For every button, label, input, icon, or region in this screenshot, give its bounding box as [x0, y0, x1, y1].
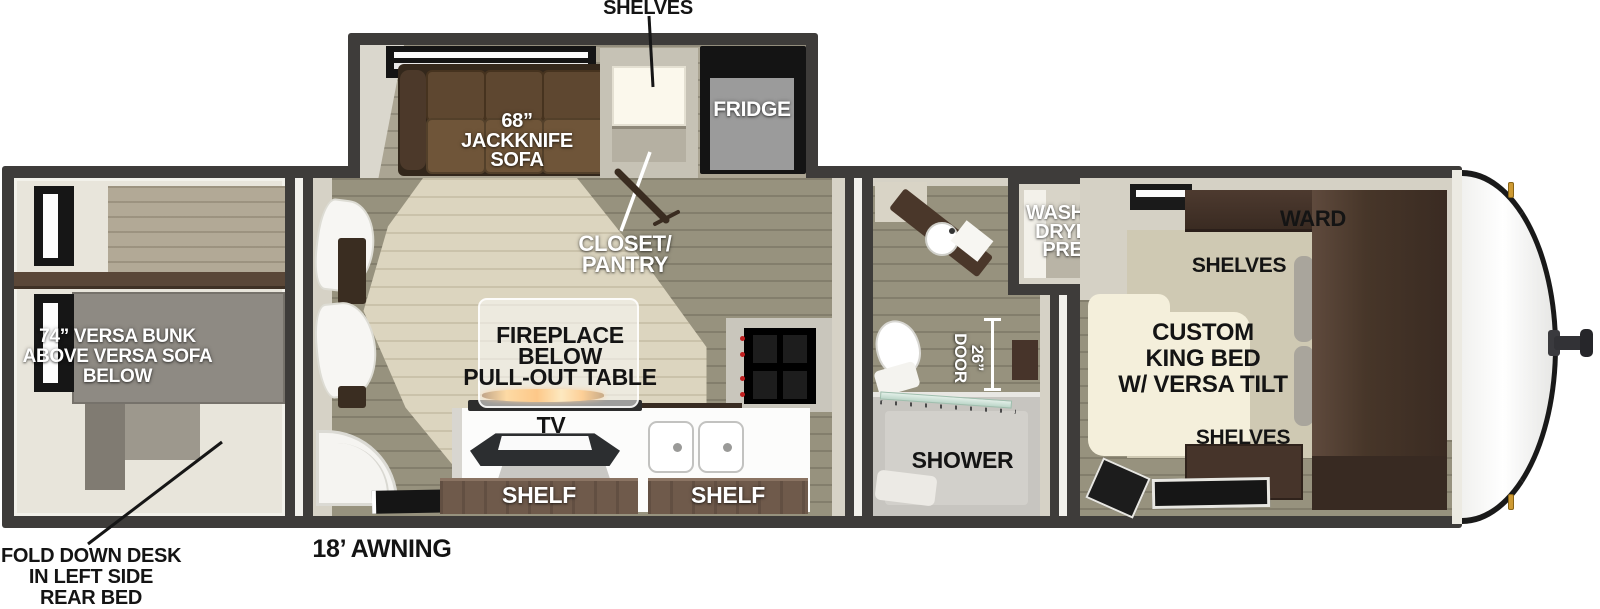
stove-knob — [740, 336, 745, 341]
rear-bedroom-wood-floor — [108, 186, 285, 276]
window-pane — [394, 52, 588, 58]
bath-left-wall — [845, 166, 854, 528]
window-pane — [43, 194, 58, 258]
burner-grate — [752, 334, 778, 364]
bath-left-wall-inner — [862, 166, 873, 528]
bedroom-rug — [1152, 477, 1271, 509]
medicine-cabinet — [1012, 340, 1038, 380]
bath-door-label: 26” DOOR — [934, 323, 986, 393]
shower-label: SHOWER — [890, 448, 1035, 472]
sink-drain-icon — [723, 443, 732, 452]
window-pane — [1136, 190, 1186, 197]
tv-screen — [498, 436, 592, 450]
faucet-icon — [949, 228, 955, 234]
bunk-label: 74” VERSA BUNK ABOVE VERSA SOFA BELOW — [20, 327, 215, 387]
shower-bench — [874, 469, 937, 506]
bath-wall-gap — [854, 178, 862, 516]
fold-down-desk-label: FOLD DOWN DESK IN LEFT SIDE REAR BED — [1, 546, 181, 609]
rear-overhead-shelf — [14, 272, 285, 289]
side-table — [338, 386, 366, 408]
rear-divider-wall — [285, 166, 295, 528]
rear-divider-gap — [295, 178, 303, 516]
door-dimension-line — [991, 320, 994, 390]
marker-light-icon — [1508, 494, 1514, 510]
fridge-label: FRIDGE — [692, 99, 812, 121]
rear-window-icon — [34, 186, 74, 266]
kitchen-sink-left — [648, 421, 694, 473]
fold-down-desk — [85, 404, 125, 490]
kitchen-sink-right — [698, 421, 744, 473]
bedroom-window-icon — [1130, 184, 1192, 210]
shelf-left-label: SHELF — [440, 483, 638, 507]
closet-shelf — [612, 66, 686, 126]
burner-grate — [752, 370, 778, 400]
shelf-right-label: SHELF — [648, 483, 808, 507]
tv-label: TV — [511, 413, 591, 437]
dinette-table — [338, 238, 366, 304]
bedroom-shelves-bottom-label: SHELVES — [1163, 427, 1323, 449]
front-cap — [1462, 170, 1558, 524]
shelves-callout-label: SHELVES — [573, 0, 723, 19]
marker-light-icon — [1508, 182, 1514, 198]
awning-label: 18’ AWNING — [282, 536, 482, 563]
closet-pantry — [600, 48, 698, 178]
hitch-coupler — [1580, 329, 1593, 357]
floorplan-diagram: 74” VERSA BUNK ABOVE VERSA SOFA BELOW — [0, 0, 1600, 609]
closet-pantry-label: CLOSET/ PANTRY — [545, 233, 705, 275]
stove-icon — [744, 328, 816, 404]
sink-drain-icon — [673, 443, 682, 452]
ward-label: WARD — [1253, 207, 1373, 230]
wardrobe-base — [1312, 456, 1447, 510]
door-dimension-cap — [984, 388, 1001, 391]
bedroom-shelves-top-label: SHELVES — [1159, 255, 1319, 277]
burner-grate — [782, 370, 808, 400]
king-bed-label: CUSTOM KING BED W/ VERSA TILT — [1078, 320, 1328, 398]
sofa-label: 68” JACKKNIFE SOFA — [427, 112, 607, 171]
burner-grate — [782, 334, 808, 364]
living-left-wall — [303, 166, 313, 528]
sofa-armrest — [400, 70, 426, 170]
fridge-door — [710, 78, 794, 170]
kitchen-right-wall-face — [832, 178, 845, 516]
fireplace-label: FIREPLACE BELOW PULL-OUT TABLE — [440, 325, 680, 388]
closet-lower-shelf — [612, 126, 686, 162]
door-dimension-cap — [984, 318, 1001, 321]
